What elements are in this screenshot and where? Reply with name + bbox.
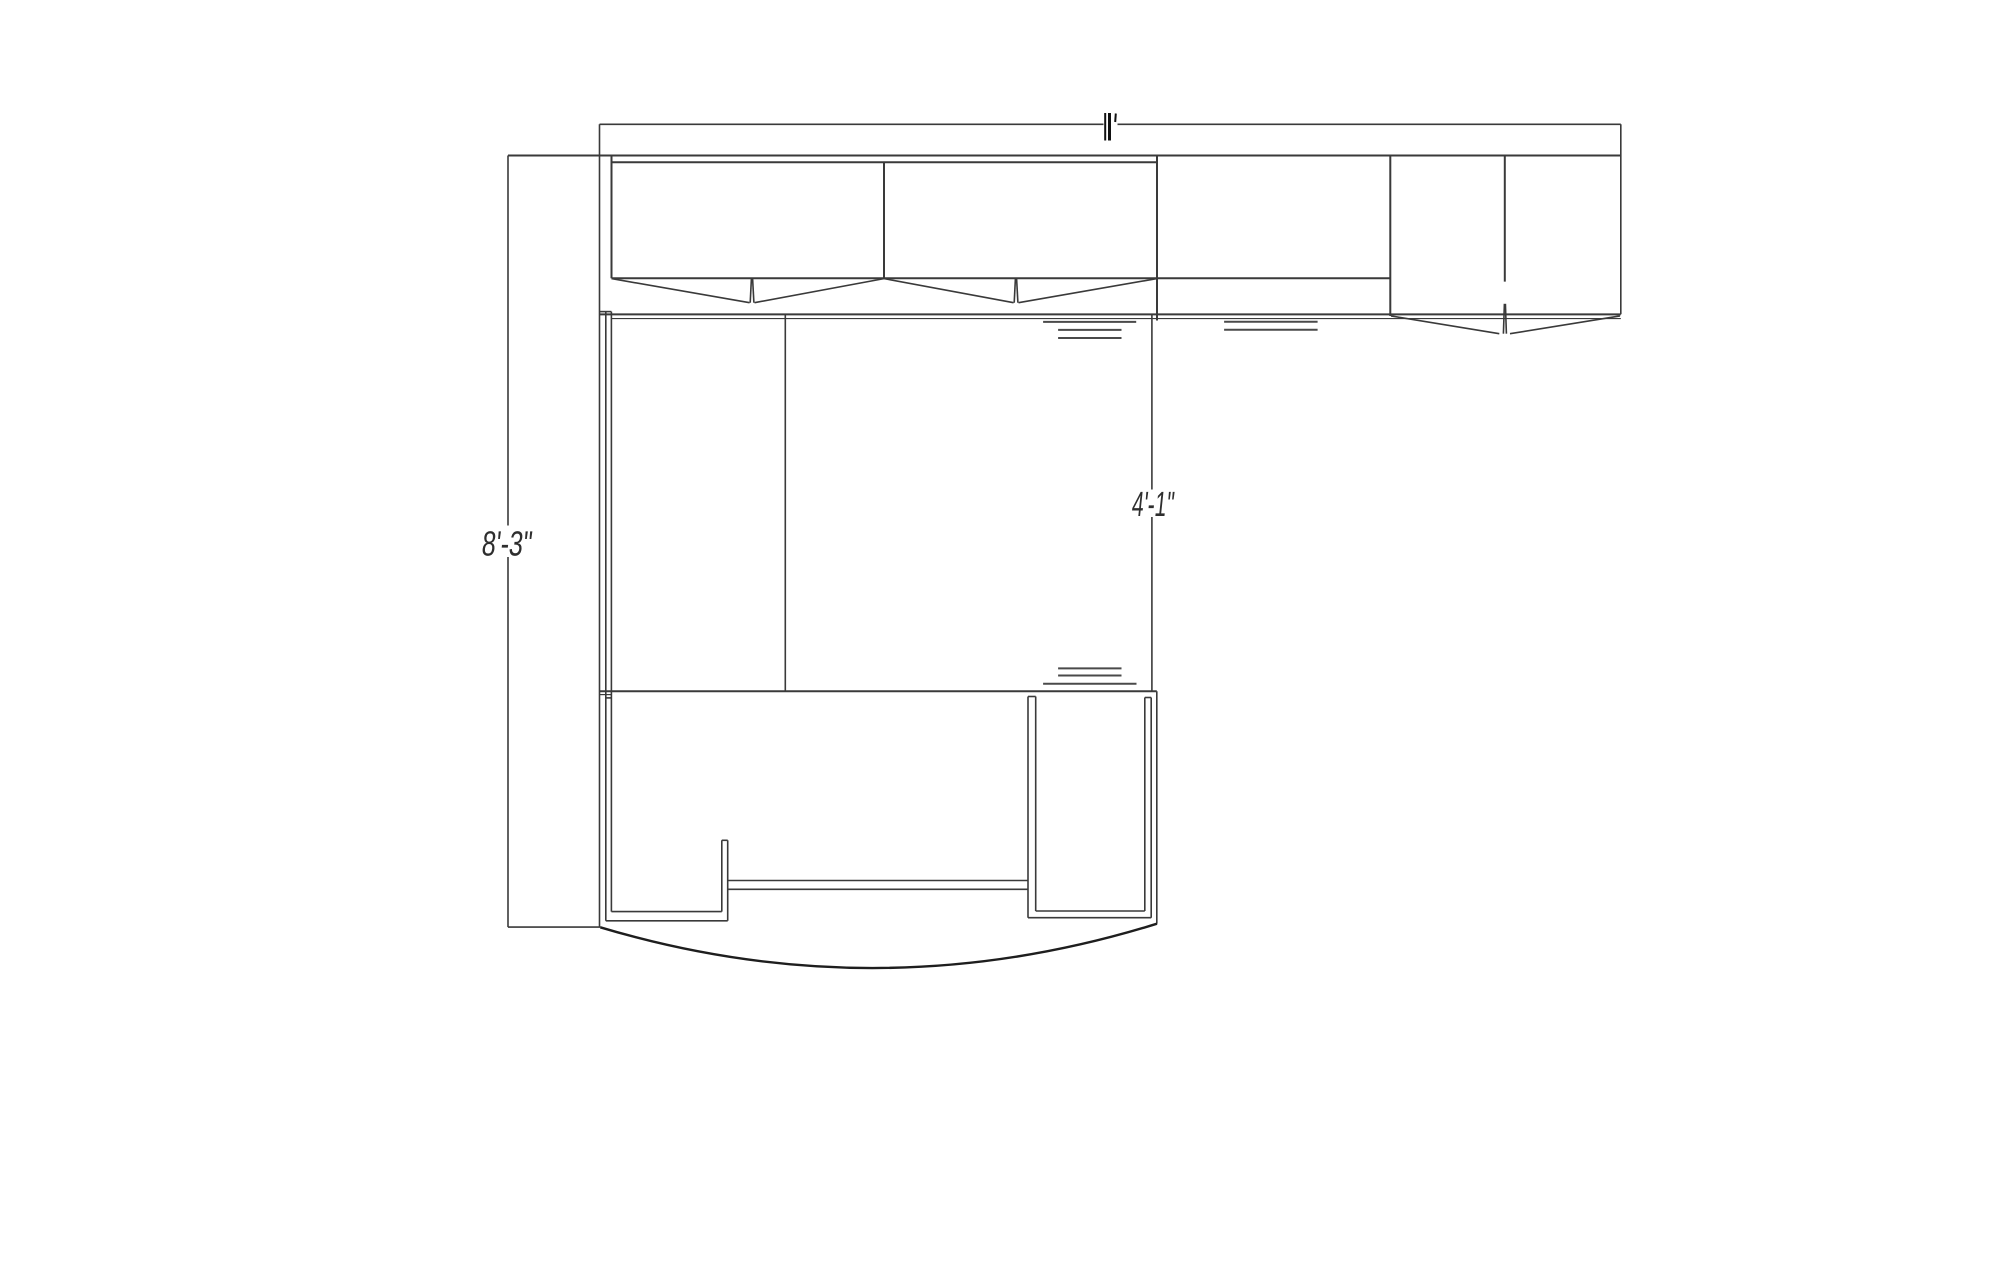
svg-text:4'-1": 4'-1" (1130, 485, 1176, 524)
svg-text:8'-3": 8'-3" (480, 525, 534, 564)
